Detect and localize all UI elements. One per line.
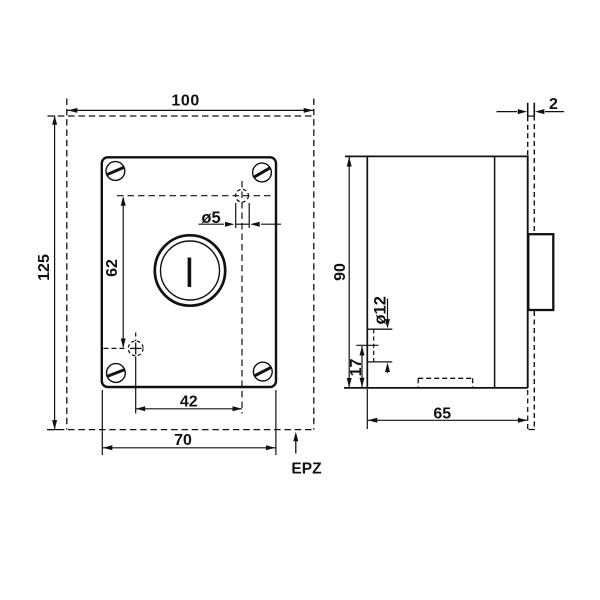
svg-text:65: 65 (433, 405, 451, 422)
svg-text:ø5: ø5 (201, 209, 220, 227)
svg-text:125: 125 (36, 254, 53, 281)
svg-text:70: 70 (174, 432, 192, 449)
svg-text:ø12: ø12 (372, 296, 390, 324)
svg-text:62: 62 (104, 259, 121, 277)
svg-text:100: 100 (171, 92, 200, 109)
svg-text:17: 17 (348, 359, 365, 377)
svg-text:2: 2 (549, 96, 558, 113)
svg-text:EPZ: EPZ (291, 461, 322, 478)
svg-text:42: 42 (180, 393, 198, 410)
svg-text:90: 90 (332, 263, 349, 281)
